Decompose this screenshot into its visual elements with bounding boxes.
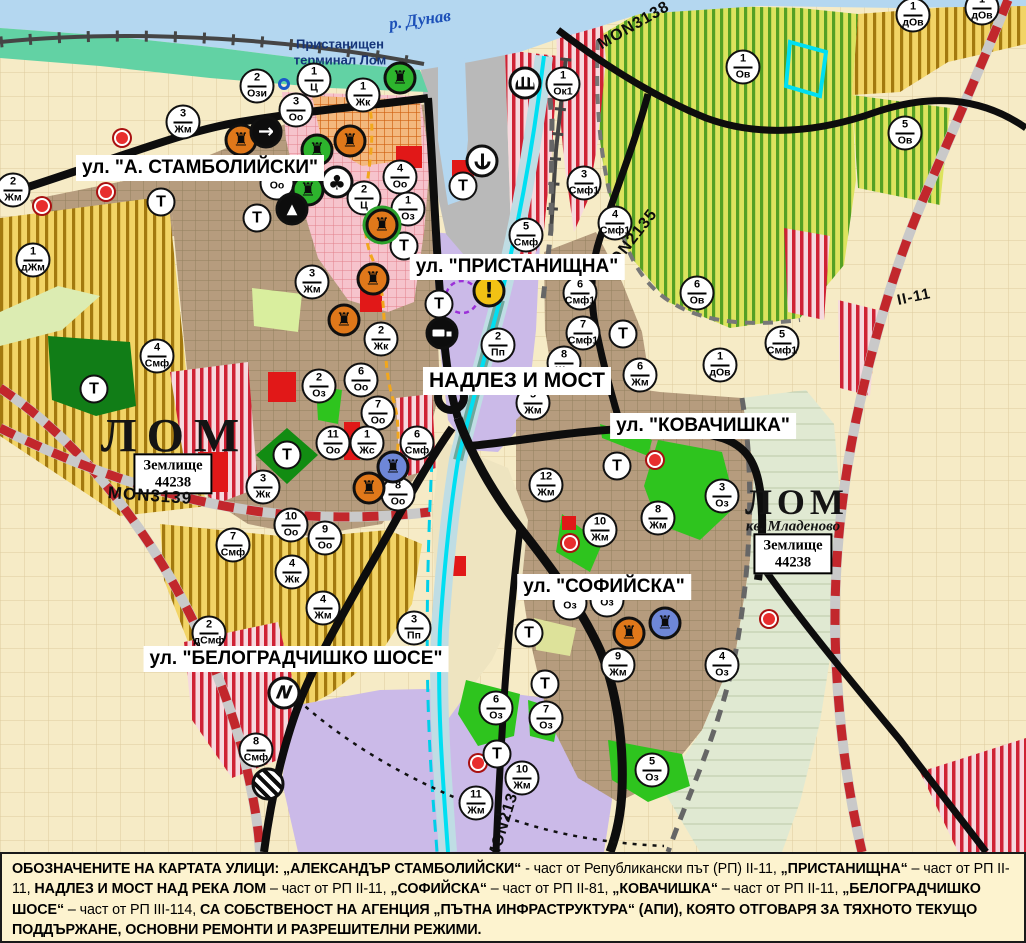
- monument-orange-icon: [328, 304, 361, 337]
- zone-marker: 1Жс: [350, 426, 385, 461]
- zone-marker: 2Ози: [240, 69, 275, 104]
- caption-segment: – част от РП III-114,: [64, 902, 200, 918]
- road-number-label: MON3138: [595, 0, 673, 54]
- map-canvas: р. Дунав Пристанищен терминал Лом ЛОМ ЛО…: [0, 0, 1026, 852]
- zone-marker: 11Оо: [316, 426, 351, 461]
- zone-marker: 2Пп: [481, 328, 516, 363]
- t-marker: Т: [243, 204, 272, 233]
- zone-marker: 1Ов: [726, 50, 761, 85]
- blue-ring-marker: [278, 78, 290, 90]
- zone-marker: 1Жк: [346, 78, 381, 113]
- caption-segment: – част от РП II-81,: [487, 881, 612, 897]
- zone-marker: 11Жм: [459, 786, 494, 821]
- zone-marker: 8Жм: [641, 501, 676, 536]
- zone-marker: 5Смф: [509, 218, 544, 253]
- t-marker: Т: [273, 441, 302, 470]
- zone-marker: 4Жм: [306, 591, 341, 626]
- zone-marker: 7Смф1: [566, 316, 601, 351]
- t-marker: Т: [531, 670, 560, 699]
- street-label: ул. "БЕЛОГРАДЧИШКО ШОСЕ": [144, 646, 449, 672]
- zone-marker: 6Жм: [623, 358, 658, 393]
- zone-marker: 3Оз: [705, 479, 740, 514]
- red-dot-marker: [761, 611, 777, 627]
- zone-marker: 2Жм: [0, 173, 31, 208]
- monument-green-icon: [384, 62, 417, 95]
- river-label: р. Дунав: [388, 6, 452, 34]
- zone-marker: 2Оз: [302, 369, 337, 404]
- monument-orange-icon: [357, 263, 390, 296]
- t-marker: Т: [603, 452, 632, 481]
- caption-segment: „СОФИЙСКА“: [390, 881, 487, 897]
- zone-marker: 4Оз: [705, 648, 740, 683]
- zone-marker: 4Смф1: [598, 206, 633, 241]
- t-marker: Т: [80, 375, 109, 404]
- street-label: ул. "ПРИСТАНИЩНА": [410, 254, 625, 280]
- club-icon: [321, 166, 354, 199]
- red-dot-marker: [114, 130, 130, 146]
- caption-segment: „КОВАЧИШКА“: [612, 881, 718, 897]
- monument-blue-icon: [649, 607, 682, 640]
- zone-marker: 10Жм: [505, 761, 540, 796]
- anchor-icon: [466, 145, 499, 178]
- caption-segment: ОБОЗНАЧЕНИТЕ НА КАРТАТА УЛИЦИ: „АЛЕКСАНД…: [12, 861, 521, 877]
- red-dot-marker: [98, 184, 114, 200]
- t-marker: Т: [609, 320, 638, 349]
- red-dot-marker: [647, 452, 663, 468]
- zone-marker: 1Ц: [297, 63, 332, 98]
- zone-marker: 9Оо: [308, 521, 343, 556]
- zone-marker: 2Жк: [364, 322, 399, 357]
- caption-segment: НАДЛЕЗ И МОСТ НАД РЕКА ЛОМ: [34, 881, 266, 897]
- zone-marker: 3Смф1: [567, 166, 602, 201]
- zone-marker: 6Оз: [479, 691, 514, 726]
- monument-orange-icon: [613, 617, 646, 650]
- map-caption: ОБОЗНАЧЕНИТЕ НА КАРТАТА УЛИЦИ: „АЛЕКСАНД…: [0, 852, 1026, 943]
- zone-marker: 3Жк: [246, 470, 281, 505]
- caption-segment: – част от РП II-11,: [718, 881, 842, 897]
- zone-marker: 6Оо: [344, 363, 379, 398]
- zone-marker: 5Оз: [635, 753, 670, 788]
- zoning-map-page: р. Дунав Пристанищен терминал Лом ЛОМ ЛО…: [0, 0, 1026, 943]
- zone-marker: 7Оз: [529, 701, 564, 736]
- t-marker: Т: [515, 619, 544, 648]
- street-label: ул. "СОФИЙСКА": [517, 574, 691, 600]
- marker-layer: р. Дунав Пристанищен терминал Лом ЛОМ ЛО…: [0, 0, 1026, 852]
- zone-marker: 5Смф1: [765, 326, 800, 361]
- zone-marker: 1дОв: [703, 348, 738, 383]
- arrow-icon: [250, 116, 283, 149]
- mountain-icon: [276, 193, 309, 226]
- zone-marker: 4Жк: [275, 555, 310, 590]
- land-registry-box: Землище 44238: [753, 533, 832, 574]
- road-number-label: II-11: [896, 285, 933, 309]
- zone-marker: 7Смф: [216, 528, 251, 563]
- zone-marker: 1дОв: [896, 0, 931, 33]
- zone-marker: 3Жм: [166, 105, 201, 140]
- city-label-lom-mladenovo: ЛОМ: [745, 481, 849, 523]
- zone-marker: 5Ов: [888, 116, 923, 151]
- monument-orange-icon: [334, 125, 367, 158]
- t-marker: Т: [483, 740, 512, 769]
- t-marker: Т: [147, 188, 176, 217]
- zone-marker: 8Смф: [239, 733, 274, 768]
- street-label: ул. "А. СТАМБОЛИЙСКИ": [76, 155, 324, 181]
- zone-marker: 1дОв: [965, 0, 1000, 26]
- lightning-icon: [268, 677, 301, 710]
- red-dot-marker: [562, 535, 578, 551]
- zone-marker: 12Жм: [529, 468, 564, 503]
- fan-icon: [509, 67, 542, 100]
- caption-segment: - част от Републикански път (РП) II-11,: [521, 861, 780, 877]
- zone-marker: 3Оо: [279, 93, 314, 128]
- zone-marker: 10Оо: [274, 508, 309, 543]
- street-label: ул. "КОВАЧИШКА": [610, 413, 796, 439]
- zone-marker: 6Ов: [680, 276, 715, 311]
- zone-marker: 6Смф1: [563, 276, 598, 311]
- zone-marker: 3Пп: [397, 611, 432, 646]
- red-dot-marker: [34, 198, 50, 214]
- zone-marker: 1Ок1: [546, 67, 581, 102]
- zone-marker: 4Смф: [140, 339, 175, 374]
- hatch-icon: [252, 768, 285, 801]
- t-marker: Т: [449, 172, 478, 201]
- zone-marker: 9Жм: [601, 648, 636, 683]
- truck-icon: [426, 317, 459, 350]
- t-marker: Т: [425, 290, 454, 319]
- monument-blue-icon: [377, 451, 410, 484]
- monument-orange-green-ring-icon: [366, 209, 399, 242]
- zone-marker: 3Жм: [295, 265, 330, 300]
- zone-marker: 1дЖм: [16, 243, 51, 278]
- caption-segment: „ПРИСТАНИЩНА“: [781, 861, 908, 877]
- zone-marker: 10Жм: [583, 513, 618, 548]
- zone-marker: 4Оо: [383, 160, 418, 195]
- caption-segment: – част от РП II-11,: [266, 881, 390, 897]
- street-label: НАДЛЕЗ И МОСТ: [423, 367, 611, 395]
